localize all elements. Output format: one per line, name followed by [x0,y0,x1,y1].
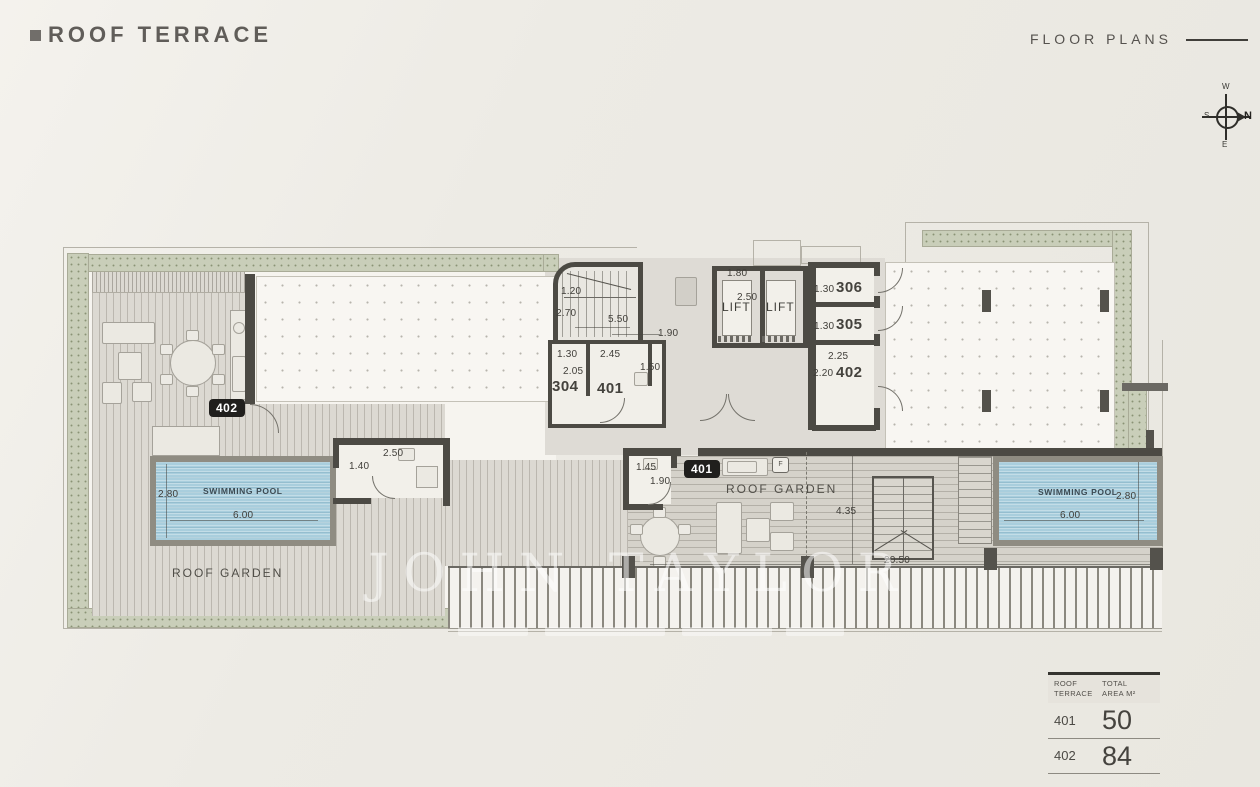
dim-306: 1.30 [814,284,834,295]
dim-wc-left-w: 2.50 [383,448,403,459]
shower-icon [416,466,438,488]
unit-badge-401: 401 [684,460,720,478]
armchair [102,382,122,404]
lift-label: LIFT [766,300,794,314]
area-cell: 84 [1102,742,1132,770]
area-cell: 50 [1102,706,1132,734]
coffee-table [746,518,770,542]
dim-304-w: 1.30 [557,349,577,360]
wall-segment [586,344,590,396]
wall-segment [1122,383,1168,391]
wall-segment [812,302,876,307]
roof-garden-label-right: ROOF GARDEN [726,482,837,496]
chair [160,374,173,385]
wall-segment [698,448,1162,456]
column-post [982,390,991,412]
outline-line [63,628,449,629]
wall-segment [874,408,880,430]
table-row: 401 50 [1048,703,1160,738]
chair [212,374,225,385]
room-305: 305 [836,316,863,333]
header-line: TERRACE [1054,689,1102,699]
left-terrace [256,276,557,402]
planting-strip [922,230,1124,247]
dim-line [612,334,660,335]
column-post [1100,290,1109,312]
chair [186,386,199,397]
compass-south: S [1204,111,1209,120]
wall-segment [333,438,450,445]
watermark-tagline [682,627,772,636]
pool-label: SWIMMING POOL [203,486,283,496]
planting-strip [88,254,554,272]
compass-icon: N W S E [1192,82,1260,152]
dim-402-w: 2.25 [828,351,848,362]
armchair [132,382,152,402]
pool-label: SWIMMING POOL [1038,487,1118,497]
watermark-tagline [458,627,528,636]
counter-unit [727,461,757,473]
watermark: JOHN TAYLOR [368,544,911,604]
header-line: ROOF [1054,679,1102,689]
header-line: AREA M² [1102,689,1136,699]
column-post [1100,390,1109,412]
table-row: 402 84 [1048,739,1160,774]
dim-402-d: 2.20 [813,368,833,379]
compass-north: N [1244,110,1252,122]
chair [160,344,173,355]
table-header-col1: ROOF TERRACE [1054,679,1102,699]
dim-corr-w: 2.45 [600,349,620,360]
column-post [982,290,991,312]
stair-hatch [152,426,220,456]
wall-segment [443,438,450,506]
header-rule [1186,39,1248,41]
watermark-tagline [786,627,844,636]
dim-pool-width: 2.80 [1116,491,1136,502]
wall-segment [623,448,629,510]
watermark-tagline [545,627,665,636]
dim-landing: 1.90 [658,328,678,339]
dim-stair-run: 5.50 [608,314,628,325]
table-header-col2: TOTAL AREA M² [1102,679,1136,699]
pergola-post [984,548,997,570]
louvre-band [92,272,245,293]
dim-lift-d: 2.50 [737,292,757,303]
pergola-post [1150,548,1163,570]
sink-icon [233,322,245,334]
unit-badge-402: 402 [209,399,245,417]
dim-wc-left-d: 1.40 [349,461,369,472]
chair [212,344,225,355]
table-header: ROOF TERRACE TOTAL AREA M² [1048,675,1160,703]
outline-line [63,247,637,248]
roof-edge [753,240,801,266]
floor-plan-page: ROOF TERRACE FLOOR PLANS N W S E [0,0,1260,787]
dim-line [1138,462,1139,540]
sofa [118,352,142,380]
dim-line [575,327,630,328]
dim-401-d: 1.50 [640,362,660,373]
dim-line [166,464,167,538]
chair [630,524,643,535]
dim-lift-w: 1.80 [727,268,747,279]
appliance-icon: F [772,457,789,473]
dim-terrace-d: 4.35 [836,506,856,517]
dim-pool-length: 6.00 [233,510,253,521]
dim-pool-width: 2.80 [158,489,178,500]
sofa [102,322,155,344]
counter-unit [232,356,246,392]
lift-door-sill [718,336,754,342]
unit-cell: 402 [1054,748,1102,763]
roof-garden-label-left: ROOF GARDEN [172,566,283,580]
compass-east: E [1222,140,1227,149]
unit-cell: 401 [1054,713,1102,728]
compass-circle [1216,106,1239,129]
wall-segment [333,498,371,504]
page-title: ROOF TERRACE [48,22,272,48]
dim-304-d: 2.05 [563,366,583,377]
compass-west: W [1222,82,1230,91]
chair [186,330,199,341]
swimming-pool-left [150,456,336,546]
wall-segment [623,504,663,510]
lift-door-sill [762,336,798,342]
dim-305: 1.30 [814,321,834,332]
header-line: TOTAL [1102,679,1136,689]
dim-stair-w: 1.20 [561,286,581,297]
wall-segment [812,340,876,345]
room-304: 304 [552,378,579,395]
wall-segment [333,438,339,468]
wall-segment [808,262,880,268]
chair [678,524,691,535]
stair-landing-line [564,297,636,298]
dim-wc-right-w: 1.45 [636,462,656,473]
wall-segment [671,448,677,468]
title-bullet [30,30,41,41]
armchair [770,502,794,521]
planting-strip [543,254,559,272]
room-402-int: 402 [836,364,863,381]
bench-icon [675,277,697,306]
wall-segment [760,271,765,343]
wall-segment [874,334,880,346]
dim-wc-right-d: 1.90 [650,476,670,487]
planting-strip [67,253,89,610]
wall-segment [245,274,255,404]
area-table: ROOF TERRACE TOTAL AREA M² 401 50 402 84 [1048,672,1160,774]
outline-line [63,247,64,629]
stair-hatch [958,456,992,544]
dim-pool-length: 6.00 [1060,510,1080,521]
wall-segment [812,425,876,431]
dim-stair-d: 2.70 [556,308,576,319]
dining-table [170,340,216,386]
right-terrace [885,262,1115,456]
room-306: 306 [836,279,863,296]
basin-icon [634,372,648,386]
room-401-int: 401 [597,380,624,397]
floor-plans-label: FLOOR PLANS [1030,31,1172,47]
